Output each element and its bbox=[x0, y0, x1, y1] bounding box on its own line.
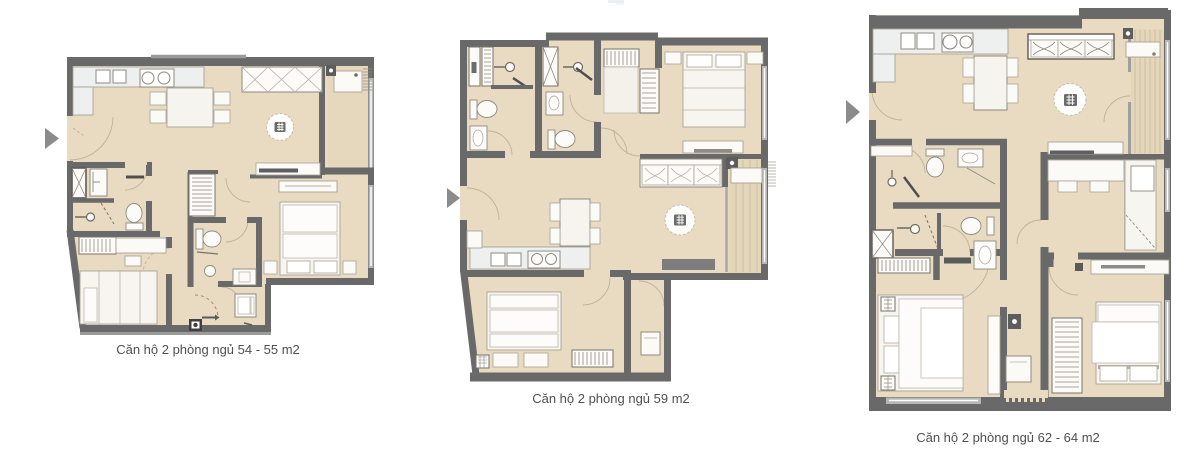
svg-text:Căn hộ 2 phòng ngủ 62 - 64 m2: Căn hộ 2 phòng ngủ 62 - 64 m2 bbox=[916, 430, 1100, 445]
svg-text:Căn hộ 2 phòng ngủ 59 m2: Căn hộ 2 phòng ngủ 59 m2 bbox=[532, 391, 690, 406]
svg-text:Căn hộ 2 phòng ngủ 54 - 55 m2: Căn hộ 2 phòng ngủ 54 - 55 m2 bbox=[116, 342, 300, 357]
